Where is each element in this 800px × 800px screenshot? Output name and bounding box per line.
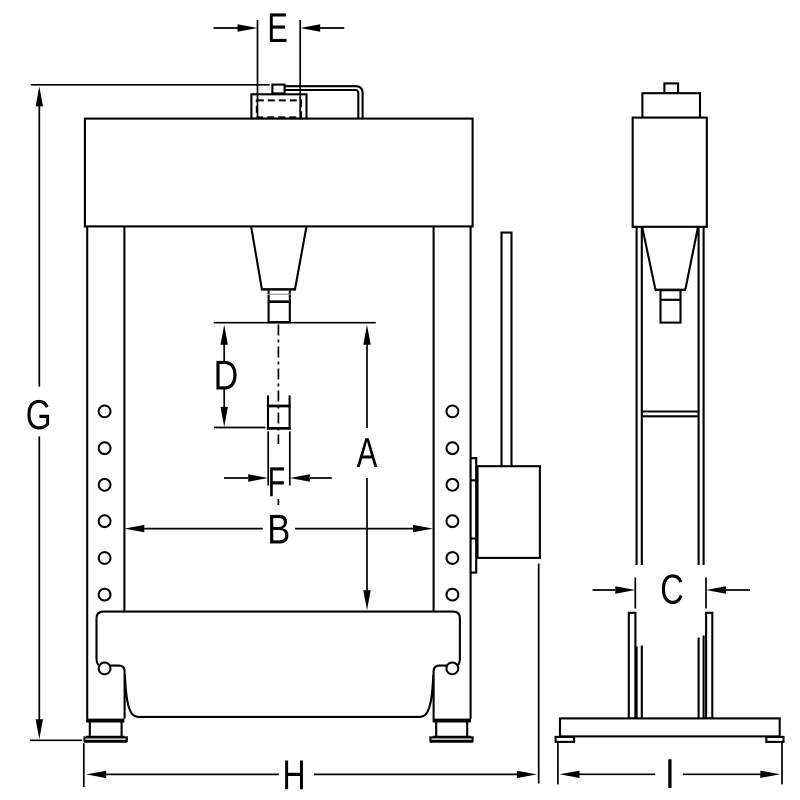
svg-text:E: E (267, 4, 287, 51)
svg-text:C: C (660, 566, 683, 613)
svg-text:D: D (214, 353, 239, 399)
svg-text:I: I (665, 751, 675, 797)
svg-text:A: A (357, 429, 378, 475)
svg-text:F: F (268, 459, 285, 506)
svg-text:H: H (282, 751, 305, 798)
svg-text:B: B (267, 507, 290, 554)
svg-text:G: G (26, 391, 52, 437)
